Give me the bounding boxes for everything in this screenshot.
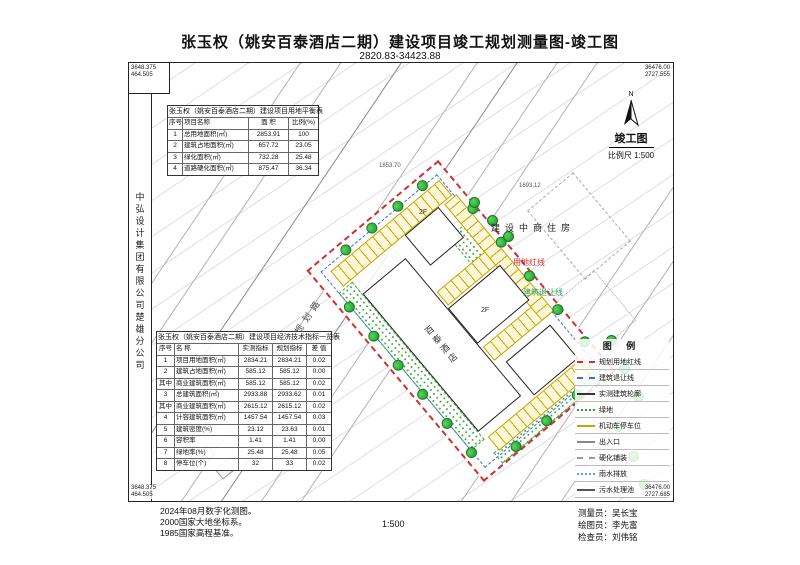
north-arrow-block: N 竣工图 比例尺 1:500	[589, 91, 673, 161]
dimension-label: 1693.12	[519, 183, 541, 189]
coordinate-value: 464.505	[131, 72, 167, 79]
area-value: 875.47	[248, 164, 288, 175]
scale-label: 比例尺 1:500	[589, 150, 673, 161]
legend-item-label: 建筑退让线	[599, 373, 634, 383]
legend-item-label: 雨水排放	[599, 469, 627, 479]
column-header: 比例(%)	[288, 118, 318, 129]
land-balance-title: 张玉权（姚安百泰酒店二期）建设项目用地平衡表	[168, 106, 318, 117]
column-header: 面 积	[248, 118, 288, 129]
street-tree-icon	[469, 197, 480, 208]
neighbor-site-label: 建设中商住房	[491, 221, 575, 234]
measured-value: 23.12	[238, 425, 272, 436]
dimension-label: 1853.70	[379, 163, 401, 169]
measured-value: 2834.21	[238, 356, 272, 367]
planned-value: 25.48	[272, 448, 306, 459]
table-row: 2 建筑占地面积(㎡) 585.12 585.12 0.00	[157, 366, 331, 378]
planned-value: 585.12	[272, 379, 306, 390]
item-name: 建筑占地面积(㎡)	[174, 367, 238, 378]
legend-symbol	[577, 393, 595, 395]
floor-count-label: 2F	[419, 209, 427, 216]
row-number: 2	[168, 141, 182, 152]
legend-symbol	[577, 377, 595, 379]
row-number: 4	[157, 413, 174, 424]
coordinate-value: 464.505	[131, 492, 156, 499]
table-row: 其中 商业建筑面积(㎡) 585.12 585.12 0.02	[157, 378, 331, 390]
planned-value: 1.41	[272, 436, 306, 447]
row-number: 2	[157, 367, 174, 378]
drawing-type-label: 竣工图	[609, 130, 654, 148]
table-row: 3 总建筑面积(㎡) 2933.88 2933.62 0.01	[157, 389, 331, 401]
row-number: 4	[168, 164, 182, 175]
table-row: 6 容积率 1.41 1.41 0.00	[157, 435, 331, 447]
page-title: 张玉权（姚安百泰酒店二期）建设项目竣工规划测量图-竣工图	[0, 31, 800, 52]
crew-line: 绘图员：李先富	[578, 519, 638, 531]
planned-value: 33	[272, 459, 306, 470]
floor-count-label: 2F	[481, 307, 489, 314]
measured-value: 32	[238, 459, 272, 470]
coordinate-value: 2727.685	[645, 492, 670, 499]
planned-value: 2615.12	[272, 402, 306, 413]
item-name: 计容建筑面积(㎡)	[174, 413, 238, 424]
legend-item: 出入口	[575, 434, 669, 450]
row-number: 8	[157, 459, 174, 470]
column-header: 名 称	[174, 344, 238, 355]
legend-item-label: 污水处理池	[599, 485, 634, 495]
indicator-table-title: 张玉权（姚安百泰酒店二期）建设项目经济技术指标一览表	[157, 332, 331, 343]
corner-coordinates-top-left: 3648.375 464.505	[129, 63, 170, 94]
measured-value: 585.12	[238, 379, 272, 390]
coordinate-value: 36476.00	[645, 65, 670, 72]
legend-item: 雨水排放	[575, 466, 669, 482]
difference-value: 0.05	[306, 448, 331, 459]
area-value: 657.72	[248, 141, 288, 152]
map-area: 规划路 百泰酒店	[151, 63, 673, 501]
ratio-value: 36.34	[288, 164, 318, 175]
table-row: 7 绿地率(%) 25.48 25.48 0.05	[157, 447, 331, 459]
difference-value: 0.02	[306, 356, 331, 367]
measured-value: 2615.12	[238, 402, 272, 413]
item-name: 总建筑面积(㎡)	[174, 390, 238, 401]
north-letter: N	[589, 91, 673, 99]
table-row: 其中 商业建筑面积(㎡) 2615.12 2615.12 0.02	[157, 401, 331, 413]
difference-value: 0.02	[306, 379, 331, 390]
difference-value: 0.00	[306, 436, 331, 447]
page-subtitle: 2820.83-34423.88	[0, 51, 800, 62]
corner-coordinates-top-right: 36476.00 2727.555	[645, 65, 670, 79]
column-header: 项目名称	[182, 118, 248, 129]
legend-symbol	[577, 409, 595, 411]
drawing-sheet: 张玉权（姚安百泰酒店二期）建设项目竣工规划测量图-竣工图 2820.83-344…	[0, 0, 800, 565]
table-row: 1 项目用地面积(㎡) 2834.21 2834.21 0.02	[157, 355, 331, 367]
measured-value: 1.41	[238, 436, 272, 447]
measured-value: 1457.54	[238, 413, 272, 424]
coordinate-value: 2727.555	[645, 72, 670, 79]
ratio-value: 23.05	[288, 141, 318, 152]
survey-note-line: 2024年08月数字化测图。	[160, 506, 256, 517]
legend-symbol	[577, 441, 595, 443]
survey-note-line: 1985国家高程基准。	[160, 528, 256, 539]
company-strip: 中弘设计集团有限公司楚雄分公司	[129, 63, 152, 501]
ratio-value: 25.48	[288, 153, 318, 164]
item-name: 建筑密度(%)	[174, 425, 238, 436]
legend-symbol	[577, 473, 595, 475]
legend-item: 绿地	[575, 402, 669, 418]
legend-title: 图 例	[575, 339, 669, 354]
table-row: 8 停车位(个) 32 33 0.02	[157, 458, 331, 470]
table-row: 3 绿化面积(㎡) 732.28 25.48	[168, 152, 318, 164]
indicator-table-rows: 1 项目用地面积(㎡) 2834.21 2834.21 0.02 2 建筑占地面…	[157, 355, 331, 470]
land-balance-rows: 1 总用地面积(㎡) 2853.91 100 2 建筑占地面积(㎡) 657.7…	[168, 129, 318, 175]
row-number: 1	[168, 130, 182, 141]
legend-item: 机动车停车位	[575, 418, 669, 434]
indicator-table: 张玉权（姚安百泰酒店二期）建设项目经济技术指标一览表 序号 名 称 实测指标 规…	[156, 331, 332, 471]
item-name: 商业建筑面积(㎡)	[174, 379, 238, 390]
difference-value: 0.03	[306, 413, 331, 424]
difference-value: 0.01	[306, 425, 331, 436]
planned-value: 1457.54	[272, 413, 306, 424]
survey-note-line: 2000国家大地坐标系。	[160, 517, 256, 528]
crew-block: 测量员：吴长宝绘图员：李先富检查员：刘伟铭	[578, 507, 638, 543]
legend-symbol	[577, 361, 595, 363]
legend-item: 建筑退让线	[575, 370, 669, 386]
north-arrow-icon	[620, 99, 642, 129]
survey-notes: 2024年08月数字化测图。2000国家大地坐标系。1985国家高程基准。	[160, 506, 256, 539]
item-name: 停车位(个)	[174, 459, 238, 470]
crew-line: 测量员：吴长宝	[578, 507, 638, 519]
measured-value: 25.48	[238, 448, 272, 459]
area-value: 2853.91	[248, 130, 288, 141]
column-header: 规划指标	[272, 344, 306, 355]
column-header: 序号	[168, 118, 182, 129]
land-balance-table: 张玉权（姚安百泰酒店二期）建设项目用地平衡表 序号 项目名称 面 积 比例(%)…	[167, 105, 319, 176]
row-number: 3	[157, 390, 174, 401]
ratio-value: 100	[288, 130, 318, 141]
row-number: 其中	[157, 379, 174, 390]
table-row: 4 计容建筑面积(㎡) 1457.54 1457.54 0.03	[157, 412, 331, 424]
row-number: 6	[157, 436, 174, 447]
item-name: 总用地面积(㎡)	[182, 130, 248, 141]
legend-item-label: 绿地	[599, 405, 613, 415]
column-header: 序号	[157, 344, 174, 355]
row-number: 5	[157, 425, 174, 436]
legend-symbol	[577, 425, 595, 427]
item-name: 道路硬化面积(㎡)	[182, 164, 248, 175]
row-number: 7	[157, 448, 174, 459]
item-name: 绿地率(%)	[174, 448, 238, 459]
setback-label: 建筑退让线	[523, 287, 563, 298]
row-number: 其中	[157, 402, 174, 413]
legend-item: 规划用地红线	[575, 354, 669, 370]
corner-coordinates-bottom-right: 36476.00 2727.685	[645, 485, 670, 499]
difference-value: 0.00	[306, 367, 331, 378]
legend-item-label: 机动车停车位	[599, 421, 641, 431]
legend-item-label: 实测建筑轮廓	[599, 389, 641, 399]
footer-scale: 1:500	[382, 519, 405, 529]
table-row: 1 总用地面积(㎡) 2853.91 100	[168, 129, 318, 141]
company-name: 中弘设计集团有限公司楚雄分公司	[134, 192, 147, 372]
difference-value: 0.01	[306, 390, 331, 401]
table-row: 5 建筑密度(%) 23.12 23.63 0.01	[157, 424, 331, 436]
difference-value: 0.02	[306, 459, 331, 470]
item-name: 容积率	[174, 436, 238, 447]
corner-coordinates-bottom-left: 3648.375 464.505	[131, 485, 156, 499]
table-row: 4 道路硬化面积(㎡) 875.47 36.34	[168, 163, 318, 175]
legend-symbol	[577, 457, 595, 459]
legend-item: 硬化铺装	[575, 450, 669, 466]
row-number: 3	[168, 153, 182, 164]
planned-value: 2933.62	[272, 390, 306, 401]
planned-value: 23.63	[272, 425, 306, 436]
table-row: 2 建筑占地面积(㎡) 657.72 23.05	[168, 140, 318, 152]
indicator-table-header: 序号 名 称 实测指标 规划指标 差 值	[157, 343, 331, 355]
item-name: 商业建筑面积(㎡)	[174, 402, 238, 413]
item-name: 建筑占地面积(㎡)	[182, 141, 248, 152]
coordinate-value: 3648.375	[131, 485, 156, 492]
item-name: 项目用地面积(㎡)	[174, 356, 238, 367]
land-balance-header: 序号 项目名称 面 积 比例(%)	[168, 117, 318, 129]
column-header: 差 值	[306, 344, 331, 355]
coordinate-value: 36476.00	[645, 485, 670, 492]
measured-value: 585.12	[238, 367, 272, 378]
legend-item-label: 硬化铺装	[599, 453, 627, 463]
planned-value: 2834.21	[272, 356, 306, 367]
redline-label: 用地红线	[513, 257, 545, 268]
legend-item-label: 规划用地红线	[599, 357, 641, 367]
coordinate-value: 3648.375	[131, 65, 167, 72]
drawing-frame: 3648.375 464.505 3648.375 464.505 中弘设计集团…	[128, 62, 674, 502]
legend-item-label: 出入口	[599, 437, 620, 447]
item-name: 绿化面积(㎡)	[182, 153, 248, 164]
legend-items: 规划用地红线 建筑退让线 实测建筑轮廓	[575, 354, 669, 498]
legend: 图 例 规划用地红线 建筑退让线	[575, 339, 669, 498]
area-value: 732.28	[248, 153, 288, 164]
difference-value: 0.02	[306, 402, 331, 413]
crew-line: 检查员：刘伟铭	[578, 531, 638, 543]
column-header: 实测指标	[238, 344, 272, 355]
legend-symbol	[577, 489, 595, 491]
planned-value: 585.12	[272, 367, 306, 378]
measured-value: 2933.88	[238, 390, 272, 401]
row-number: 1	[157, 356, 174, 367]
legend-item: 实测建筑轮廓	[575, 386, 669, 402]
